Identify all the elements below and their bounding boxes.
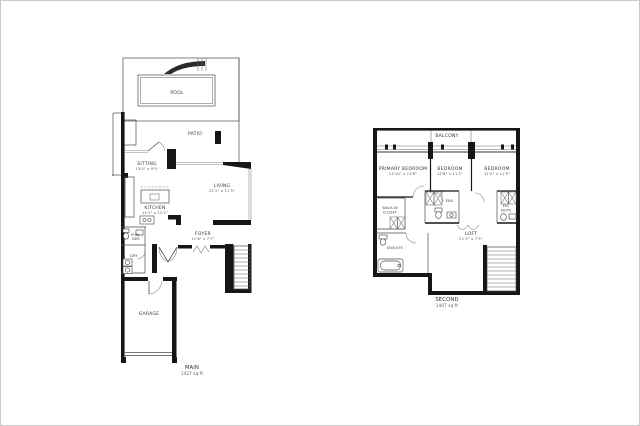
main-area-label: 1427 sq ft bbox=[181, 371, 203, 376]
laundry-label: DRY bbox=[130, 254, 138, 258]
pool-area bbox=[123, 58, 239, 121]
second-area-label: 1407 sq ft bbox=[436, 303, 458, 308]
middle-bath bbox=[425, 191, 459, 223]
bedroom-3-dims: 11'5" x 11'5" bbox=[484, 172, 510, 176]
primary-bedroom-dims: 13'10" x 13'8" bbox=[389, 172, 418, 176]
ensuite-label: ENSUITE bbox=[387, 246, 403, 250]
powder-label-line2: DER bbox=[132, 237, 140, 241]
walk-in-closet-label-line2: CLOSET bbox=[383, 211, 398, 215]
en-suite-label-line2: SUITE bbox=[501, 209, 512, 213]
kitchen-dims: 14'1" x 12'2" bbox=[142, 211, 168, 215]
bedroom-2-dims: 12'8" x 11'2" bbox=[437, 172, 463, 176]
garage-label: GARAGE bbox=[139, 311, 159, 317]
living-dims: 21'2" x 11'5" bbox=[209, 189, 235, 193]
balcony-label: BALCONY bbox=[435, 133, 458, 139]
second-stairs bbox=[483, 245, 516, 295]
foyer-dims: 11'6" x 7'7" bbox=[191, 237, 215, 241]
sitting-dims: 13'0" x 9'5" bbox=[135, 167, 159, 171]
kitchen-fixtures bbox=[125, 177, 169, 224]
second-floor-plan: BALCONY PRIMARY BEDROOM 13'10" x 13'8" B… bbox=[373, 128, 520, 308]
main-stairs bbox=[234, 246, 250, 289]
pool-feature bbox=[164, 61, 205, 74]
walk-in-closet-label-line1: WALK-IN bbox=[382, 206, 398, 210]
primary-ensuite bbox=[376, 233, 428, 273]
loft-dims: 21'3" x 7'5" bbox=[459, 237, 483, 241]
floor-plan-canvas: POOL PATIO SITTING 13'0" x 9'5" LIVING 2… bbox=[1, 1, 640, 426]
ens-label: ENS. bbox=[446, 199, 455, 203]
floor-plan-page: POOL PATIO SITTING 13'0" x 9'5" LIVING 2… bbox=[0, 0, 640, 426]
patio-label: PATIO bbox=[188, 131, 202, 137]
main-floor-plan: POOL PATIO SITTING 13'0" x 9'5" LIVING 2… bbox=[112, 58, 252, 376]
main-walls bbox=[121, 112, 252, 363]
en-suite-label-line1: EN- bbox=[503, 204, 510, 208]
pool-label: POOL bbox=[170, 90, 184, 96]
